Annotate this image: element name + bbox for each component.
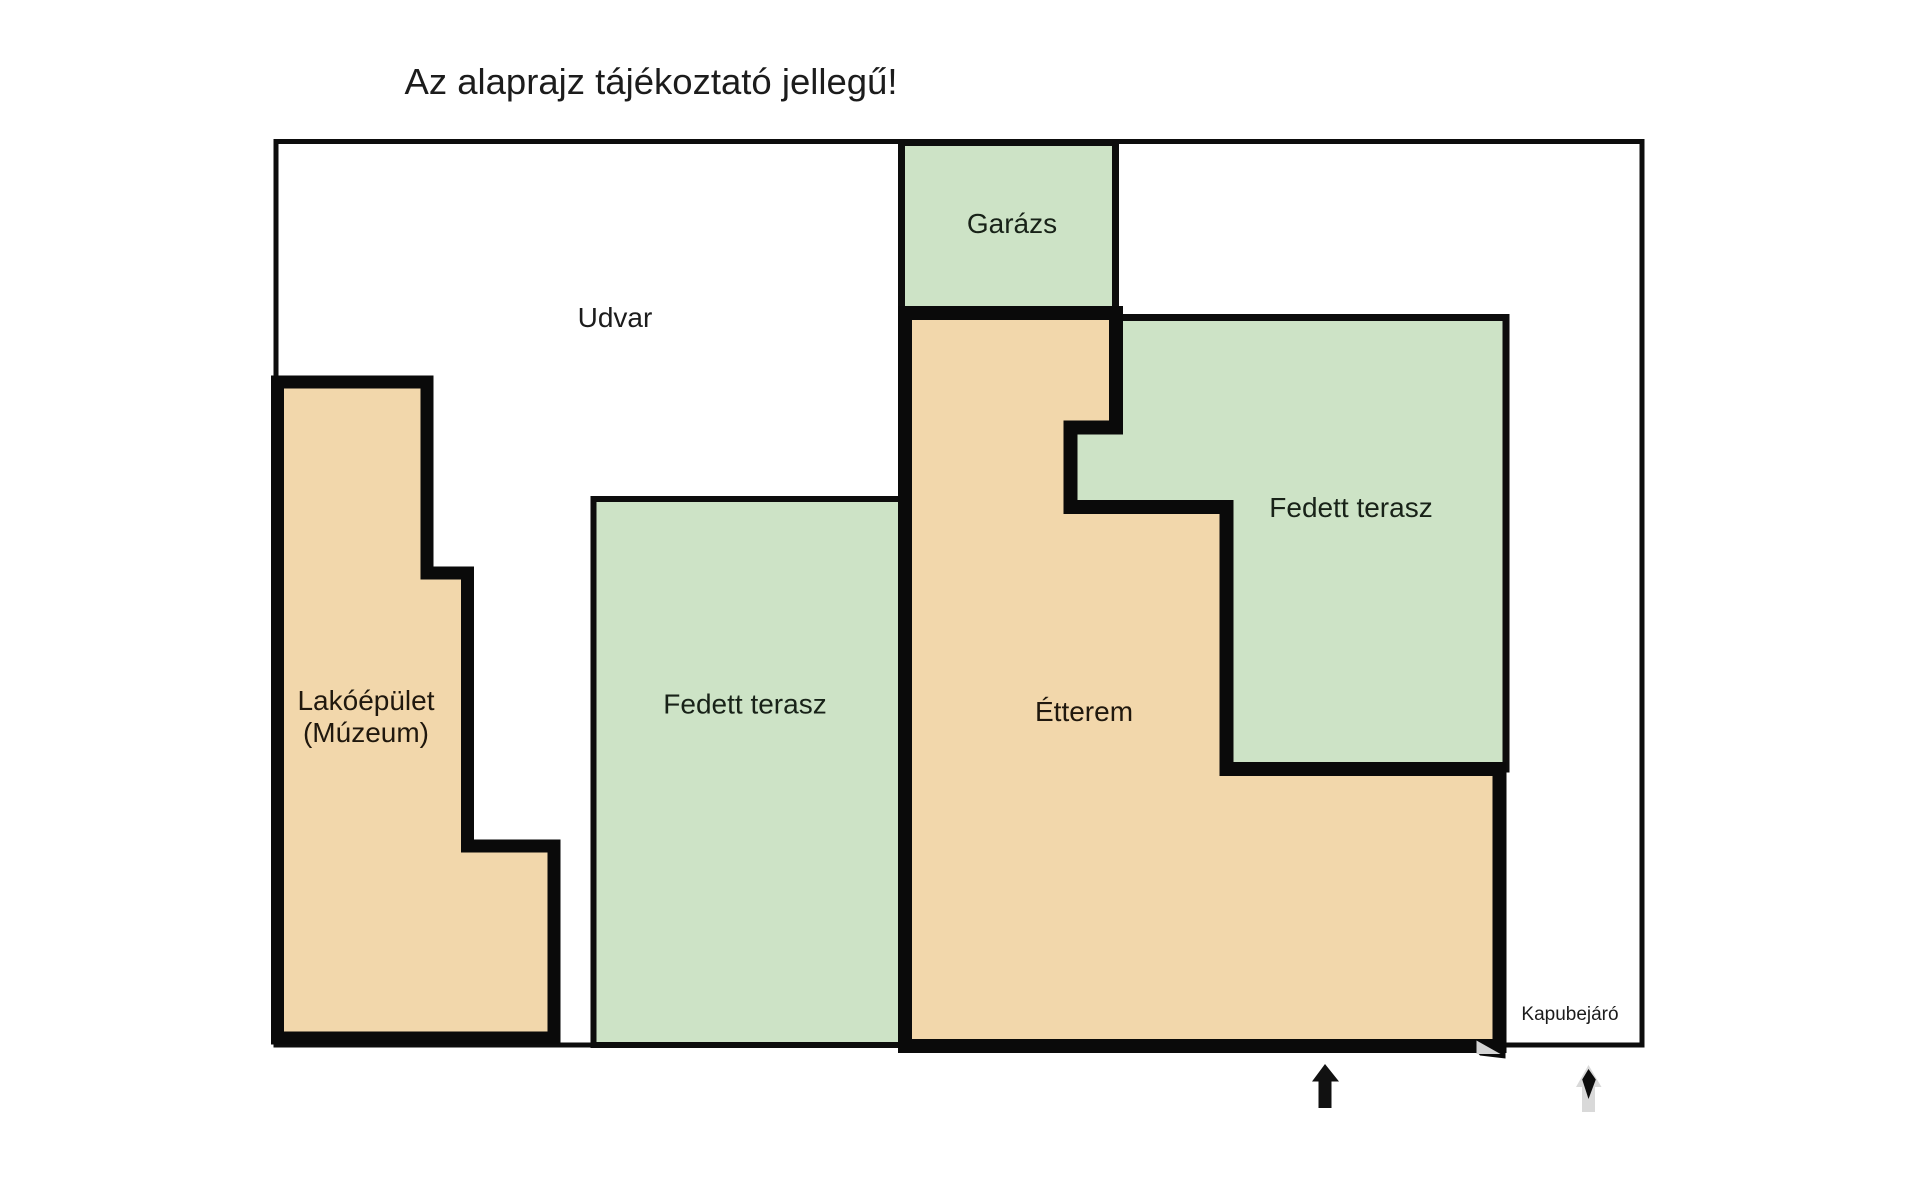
svg-text:(Múzeum): (Múzeum) [303,717,429,748]
svg-text:Fedett terasz: Fedett terasz [1269,492,1432,523]
svg-text:Az alaprajz tájékoztató jelleg: Az alaprajz tájékoztató jellegű! [404,61,897,102]
svg-text:Lakóépület: Lakóépület [297,685,434,716]
svg-text:Fedett terasz: Fedett terasz [663,689,826,720]
svg-text:Garázs: Garázs [967,208,1057,239]
svg-text:Kapubejáró: Kapubejáró [1521,1004,1618,1025]
svg-text:Udvar: Udvar [578,302,653,333]
svg-text:Étterem: Étterem [1035,696,1133,727]
